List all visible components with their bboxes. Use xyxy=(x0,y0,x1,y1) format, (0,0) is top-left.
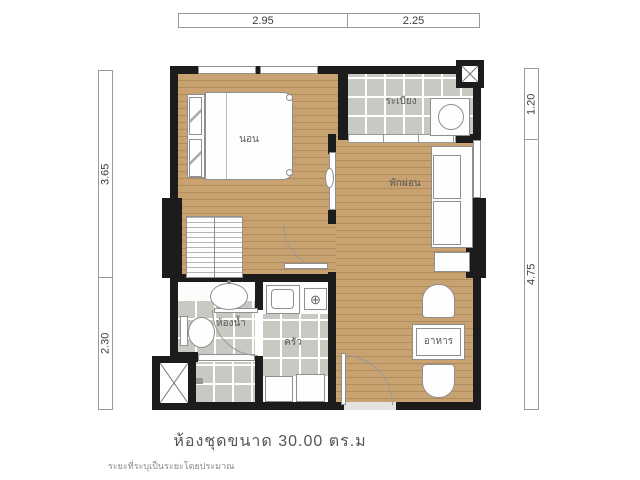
bed-blanket-fold xyxy=(226,93,227,179)
bathroom-label: ห้องน้ำ xyxy=(207,318,255,329)
bathroom-sink xyxy=(210,283,248,310)
kitchen-appliance-2 xyxy=(296,374,325,402)
sofa-cushion-bottom xyxy=(433,201,461,245)
dining-chair-top xyxy=(422,284,455,318)
dimension-box-left: 3.65 2.30 xyxy=(98,70,113,410)
wall-left-bathroom xyxy=(170,282,178,362)
side-table xyxy=(434,252,470,272)
column-top-right xyxy=(456,60,484,88)
dimension-right-2: 4.75 xyxy=(524,139,539,410)
wall-bedroom-living-2 xyxy=(328,210,336,224)
bed-corner-dot-bottom xyxy=(286,169,293,176)
shower-head xyxy=(196,378,203,384)
column-x-icon xyxy=(152,356,196,410)
sink-faucet-dot xyxy=(227,280,231,284)
column-bottom-left xyxy=(152,356,196,410)
wall-bath-kitchen-lower xyxy=(255,356,263,402)
dimension-box-right: 1.20 4.75 xyxy=(524,68,539,410)
toilet-cistern xyxy=(180,316,188,346)
bed-corner-dot-top xyxy=(286,94,293,101)
living-window xyxy=(473,140,481,198)
entry-door-leaf xyxy=(341,353,346,405)
plan-disclaimer: ระยะที่ระบุเป็นระยะโดยประมาณ xyxy=(108,459,234,473)
dimension-right-1: 1.20 xyxy=(524,68,539,140)
sofa-cushion-top xyxy=(433,155,461,199)
shower-sliding-door xyxy=(198,354,255,361)
bedroom-window-2 xyxy=(260,66,318,74)
stove-burner-icon: ⊕ xyxy=(310,293,321,306)
dining-chair-bottom xyxy=(422,364,455,398)
wall-right-balcony xyxy=(473,88,481,140)
column-x-icon xyxy=(456,60,484,88)
kitchen-label: ครัว xyxy=(273,337,313,348)
bedroom-door-leaf xyxy=(284,263,328,269)
dimension-left-2: 2.30 xyxy=(98,277,113,410)
dimension-top-2: 2.25 xyxy=(347,13,480,28)
dimension-box-top: 2.95 2.25 xyxy=(178,13,481,28)
balcony-label: ระเบียง xyxy=(375,96,427,107)
wardrobe-divider xyxy=(214,216,215,278)
wall-kitchen-right xyxy=(328,282,336,402)
wall-bedroom-living-1 xyxy=(328,134,336,154)
bedroom-window-1 xyxy=(198,66,256,74)
bedroom-label: นอน xyxy=(229,134,269,145)
dining-label: อาหาร xyxy=(414,336,463,347)
washing-machine-drum xyxy=(438,104,464,130)
sliding-door-handle xyxy=(325,168,334,188)
kitchen-sink-basin xyxy=(271,289,294,309)
stove: ⊕ xyxy=(304,288,327,310)
dimension-left-1: 3.65 xyxy=(98,70,113,278)
plan-title: ห้องชุดขนาด 30.00 ตร.ม xyxy=(120,429,420,454)
living-label: พักผ่อน xyxy=(378,178,432,189)
floor-plan: ⊕ นอน ระเบียง พักผ่อน ห้องน้ำ ครัว อาหาร… xyxy=(0,0,640,480)
nightstand-bottom xyxy=(189,139,202,177)
wall-balcony-divider xyxy=(338,66,348,140)
wall-bottom-right xyxy=(396,402,481,410)
wall-left-pier xyxy=(162,198,182,278)
dimension-top-1: 2.95 xyxy=(178,13,348,28)
nightstand-top xyxy=(189,97,202,135)
kitchen-appliance-1 xyxy=(265,376,293,402)
wall-bath-kitchen-upper xyxy=(255,282,263,310)
shower-floor xyxy=(196,362,255,402)
